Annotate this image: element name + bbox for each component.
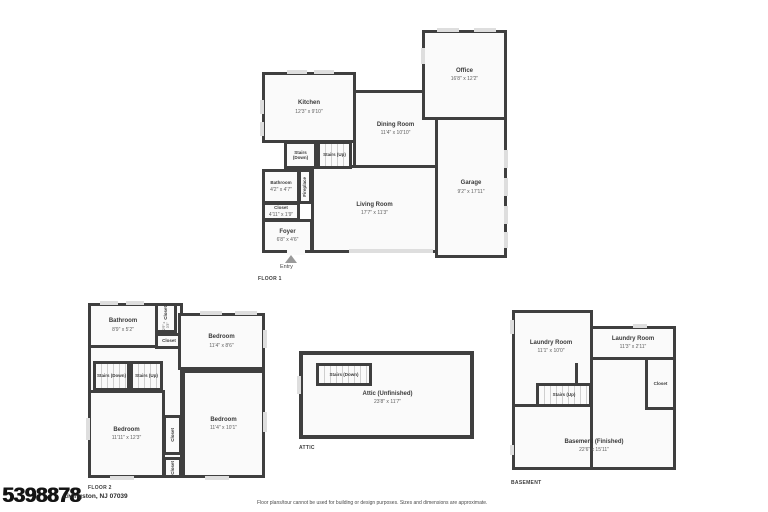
caption-attic: ATTIC <box>299 445 315 451</box>
room-label: Closet <box>162 338 176 343</box>
room-label: Bathroom <box>270 180 291 185</box>
caption-basement: BASEMENT <box>511 480 541 486</box>
basement-interior-wall <box>575 363 578 385</box>
stairs-label: Stairs (Up) <box>553 392 576 397</box>
room-foyer: Foyer 6'8" x 4'6" <box>262 219 313 253</box>
entry-label: Entry <box>280 264 293 270</box>
room-dims: 23'8" x 11'7" <box>374 399 401 405</box>
room-label: Closet <box>170 428 175 442</box>
garage-door-segment <box>504 206 508 224</box>
floor-plan-page: Kitchen 12'3" x 9'10" Dining Room 11'4" … <box>0 0 768 512</box>
room-label: Garage <box>461 180 482 187</box>
window <box>474 28 496 32</box>
sliding-door <box>349 249 433 253</box>
room-garage: Garage 9'2" x 17'11" <box>435 117 507 258</box>
room-dims: 22'6" x 15'11" <box>579 447 609 453</box>
window <box>421 48 425 64</box>
room-label: Office <box>456 68 473 75</box>
stairs-label: Stairs (Down) <box>329 372 358 377</box>
window <box>314 70 334 74</box>
room-label: Basement (Finished) <box>564 439 623 446</box>
room-label: Laundry Room <box>612 336 654 343</box>
window <box>297 376 301 394</box>
window <box>205 476 229 480</box>
entry-arrow-icon <box>285 255 297 263</box>
window <box>110 476 134 480</box>
room-dims: 12'3" x 9'10" <box>295 109 322 115</box>
room-living: Living Room 17'7" x 11'3" <box>311 165 438 253</box>
stairs-up-floor2: Stairs (Up) <box>130 361 163 391</box>
basement-interior-wall <box>512 404 592 407</box>
room-label: Closet <box>274 205 288 210</box>
room-label: Dining Room <box>377 122 414 129</box>
room-dims: 6'8" x 4'6" <box>277 237 299 243</box>
garage-door-segment <box>504 232 508 248</box>
room-label: Closet <box>170 461 175 475</box>
room-label: Closet <box>163 306 168 320</box>
window <box>100 301 118 305</box>
room-closet-tall-floor2: Closet 2'9" x 3'3" <box>155 303 177 333</box>
window <box>260 122 264 136</box>
room-closet-bottom-floor2: Closet <box>163 457 182 478</box>
room-dims: 11'3" x 2'11" <box>620 344 647 350</box>
fireplace-label: Fireplace <box>302 177 307 197</box>
stairs-label: Stairs (Up) <box>135 373 158 378</box>
room-dims: 4'2" x 4'7" <box>270 187 292 193</box>
window <box>263 330 267 348</box>
room-bedroom-bottom-right: Bedroom 11'4" x 10'1" <box>182 370 265 478</box>
stairs-label: Stairs (Up) <box>323 152 346 157</box>
room-label: Closet <box>654 381 668 386</box>
disclaimer-text: Floor plans/tour cannot be used for buil… <box>257 500 487 506</box>
room-bathroom-floor1: Bathroom 4'2" x 4'7" <box>262 169 300 204</box>
window <box>235 311 257 315</box>
room-dims: 11'1" x 10'0" <box>537 348 564 354</box>
room-dims: 4'11" x 1'9" <box>269 212 293 218</box>
room-basement-label: Basement (Finished) 22'6" x 15'11" <box>533 437 655 455</box>
room-closet-basement: Closet <box>645 357 676 410</box>
stairs-down-attic: Stairs (Down) <box>316 363 372 386</box>
room-dims: 16'8" x 12'2" <box>451 76 478 82</box>
room-bathroom-floor2: Bathroom 8'9" x 5'2" <box>88 303 158 348</box>
room-dims: 2'9" x 3'3" <box>162 321 170 330</box>
room-dims: 17'7" x 11'3" <box>361 210 388 216</box>
room-office: Office 16'8" x 12'2" <box>422 30 507 120</box>
room-bedroom-top-right: Bedroom 11'4" x 8'6" <box>178 313 265 370</box>
room-label: Living Room <box>356 202 392 209</box>
window <box>510 445 514 455</box>
stairs-down-floor1: Stairs (Down) <box>284 141 317 169</box>
room-dims: 11'4" x 8'6" <box>209 343 233 349</box>
window <box>510 320 514 334</box>
stairs-label: Stairs (Down) <box>97 373 126 378</box>
stairs-up-floor1: Stairs (Up) <box>317 141 352 169</box>
caption-floor2: FLOOR 2 <box>88 485 112 491</box>
room-dims: 11'11" x 12'3" <box>112 435 141 441</box>
window <box>263 412 267 432</box>
room-laundry-right: Laundry Room 11'3" x 2'11" <box>590 326 676 360</box>
room-attic-label: Attic (Unfinished) 23'8" x 11'7" <box>330 389 445 407</box>
room-dims: 9'2" x 17'11" <box>457 189 484 195</box>
window <box>633 324 647 328</box>
room-label: Kitchen <box>298 100 320 107</box>
window <box>86 418 90 440</box>
room-dims: 8'9" x 5'2" <box>112 327 134 333</box>
window <box>200 311 222 315</box>
window <box>126 301 144 305</box>
room-label: Bedroom <box>210 417 236 424</box>
room-kitchen: Kitchen 12'3" x 9'10" <box>262 72 356 143</box>
listing-address: Livingston, NJ 07039 <box>63 493 128 500</box>
window <box>437 28 459 32</box>
room-closet-mid-floor2: Closet <box>163 415 182 455</box>
room-label: Bedroom <box>208 334 234 341</box>
room-label: Bathroom <box>109 318 137 325</box>
room-laundry-left-label: Laundry Room 11'1" x 10'0" <box>513 338 589 356</box>
caption-floor1: FLOOR 1 <box>258 276 282 282</box>
window <box>287 70 307 74</box>
room-dims: 11'4" x 10'10" <box>381 130 411 136</box>
garage-door-segment <box>504 150 508 168</box>
stairs-label: Stairs (Down) <box>287 150 314 161</box>
fireplace: Fireplace <box>298 169 312 204</box>
room-label: Attic (Unfinished) <box>363 391 413 398</box>
room-label: Foyer <box>279 229 295 236</box>
room-bedroom-bottom-left: Bedroom 11'11" x 12'3" <box>88 390 165 478</box>
room-label: Bedroom <box>113 427 139 434</box>
stairs-down-floor2: Stairs (Down) <box>93 361 130 391</box>
window <box>260 100 264 114</box>
room-label: Laundry Room <box>530 340 572 347</box>
garage-door-segment <box>504 178 508 196</box>
room-dims: 11'4" x 10'1" <box>210 425 237 431</box>
